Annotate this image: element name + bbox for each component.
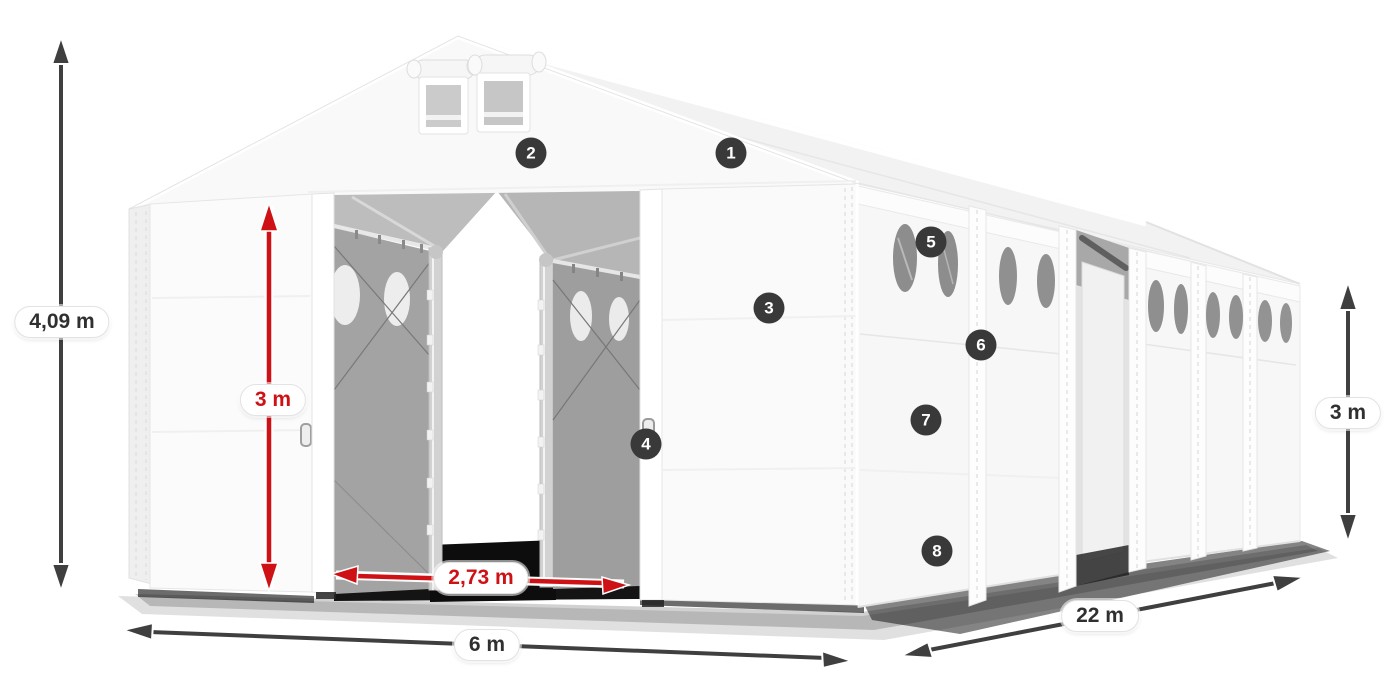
marker-4[interactable]: 4 <box>631 429 662 460</box>
label-door-height: 3 m <box>240 384 306 416</box>
tent-illustration <box>0 0 1400 700</box>
window-roll <box>414 60 474 79</box>
label-total-height: 4,09 m <box>14 306 109 338</box>
marker-6[interactable]: 6 <box>966 330 997 361</box>
base-plate <box>642 600 664 607</box>
front-corner-strip <box>129 204 152 584</box>
marker-1[interactable]: 1 <box>716 138 747 169</box>
label-side-height: 3 m <box>1315 397 1381 429</box>
front-opening-interior <box>330 190 640 602</box>
base-plate <box>316 592 336 599</box>
front-door-right[interactable] <box>662 184 858 605</box>
window-roll <box>475 55 539 75</box>
interior-partition-left <box>330 226 441 594</box>
marker-2[interactable]: 2 <box>516 138 547 169</box>
label-front-width: 6 m <box>454 629 520 661</box>
marker-5[interactable]: 5 <box>916 227 947 258</box>
side-door-panel[interactable] <box>1082 262 1124 562</box>
tent-dimension-diagram: 4,09 m 3 m 2,73 m 6 m 22 m 3 m 1 2 3 4 5… <box>0 0 1400 700</box>
marker-7[interactable]: 7 <box>911 405 942 436</box>
interior-pole-left <box>427 245 443 590</box>
interior-partition-right <box>553 261 640 589</box>
marker-8[interactable]: 8 <box>922 536 953 567</box>
front-column-left <box>312 193 334 594</box>
label-door-width: 2,73 m <box>433 562 528 594</box>
side-door-opening <box>1076 230 1129 586</box>
door-handle-left[interactable] <box>301 424 311 446</box>
interior-pole-right <box>538 253 553 587</box>
label-side-length: 22 m <box>1061 600 1139 632</box>
marker-3[interactable]: 3 <box>754 293 785 324</box>
front-column-right <box>640 189 662 600</box>
